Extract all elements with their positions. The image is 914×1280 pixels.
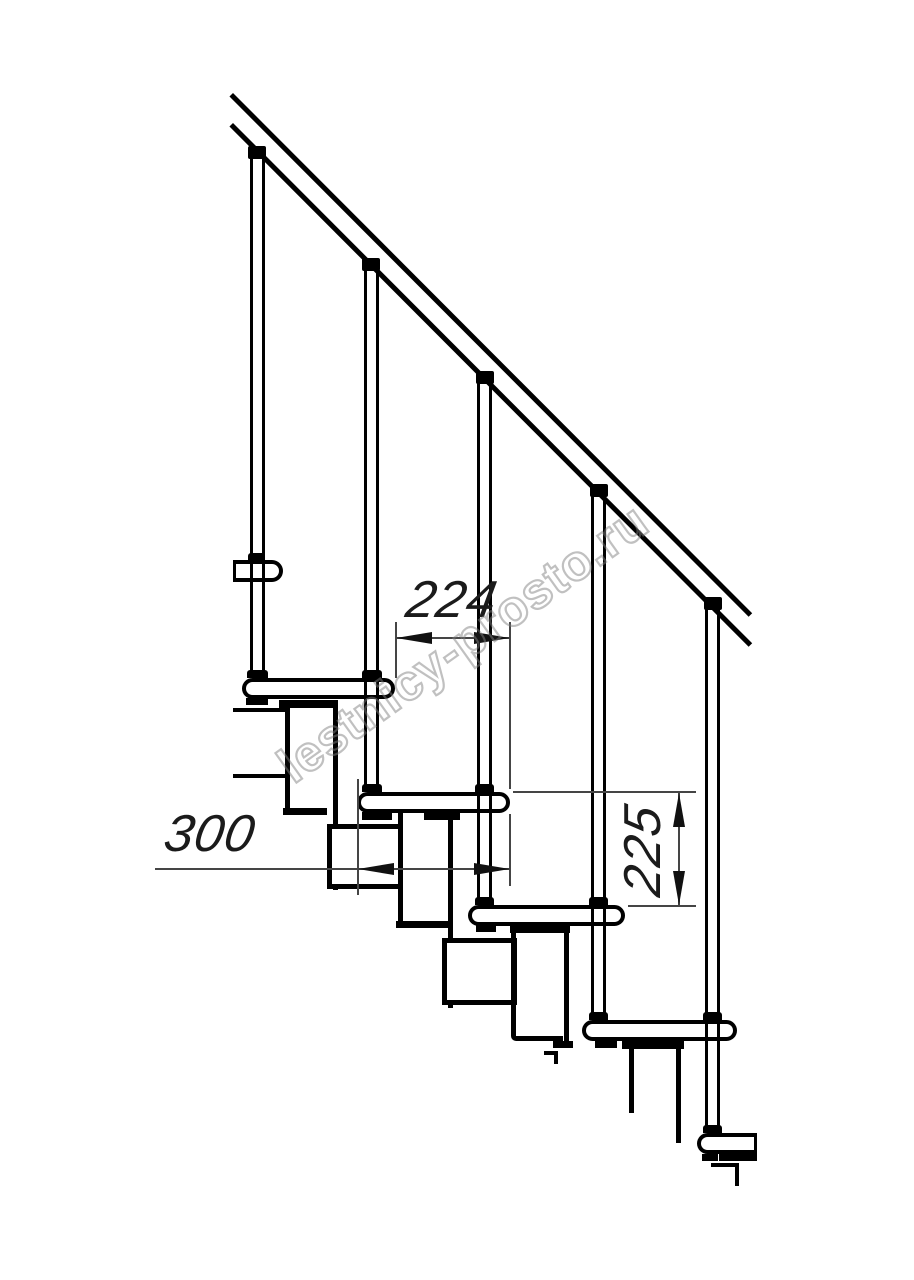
tread-6-partial bbox=[697, 1133, 757, 1154]
module-column-4-right bbox=[564, 932, 569, 1045]
baluster-3-foot-lower bbox=[475, 897, 494, 905]
baluster-4-foot-upper bbox=[589, 897, 608, 905]
baluster-1-foot-upper bbox=[248, 553, 265, 561]
module-column-4-left bbox=[511, 932, 516, 1036]
dim-300-arrow-left bbox=[358, 863, 394, 875]
tread-3-tab-left bbox=[362, 812, 392, 820]
break-hook-vertical bbox=[554, 1051, 558, 1064]
baluster-4-foot-lower bbox=[589, 1012, 608, 1020]
landing-cut-line-upper bbox=[233, 708, 287, 712]
baluster-5-foot-lower bbox=[703, 1125, 722, 1133]
dim-300-arrow-right bbox=[474, 863, 510, 875]
dim-225-ext-bottom bbox=[628, 905, 696, 907]
baluster-5-foot-upper bbox=[703, 1012, 722, 1020]
module-box-under-tread-4 bbox=[442, 938, 517, 1005]
dim-225-arrow-up bbox=[673, 793, 685, 827]
baluster-1-foot-lower bbox=[247, 670, 268, 678]
bottom-break-vertical bbox=[735, 1163, 739, 1186]
module-column-5-cut-left bbox=[629, 1048, 634, 1113]
tread-5-tab-mid bbox=[622, 1041, 684, 1049]
staircase-technical-drawing: 224 300 225 lestnicy-prosto.ru bbox=[0, 0, 914, 1280]
dim-225-arrow-down bbox=[673, 871, 685, 905]
tread-3-tab-mid bbox=[424, 812, 460, 820]
module-column-2-band bbox=[283, 808, 327, 815]
module-column-3-band bbox=[396, 921, 448, 928]
dim-300-line bbox=[155, 868, 510, 870]
tread-4-tab-left bbox=[476, 925, 496, 932]
module-box-under-tread-3 bbox=[327, 824, 403, 889]
module-column-5-cut-right bbox=[676, 1042, 681, 1143]
module-column-4-notch bbox=[553, 1041, 573, 1048]
tread-6-tab-left bbox=[702, 1154, 718, 1161]
dim-300-ext-left bbox=[357, 779, 359, 895]
dim-225-ext-top bbox=[513, 791, 696, 793]
watermark-text: lestnicy-prosto.ru bbox=[241, 473, 684, 814]
dim-225-label: 225 bbox=[617, 798, 669, 902]
dim-224-ext-right-b bbox=[509, 814, 511, 886]
tread-2-tab-left bbox=[246, 698, 268, 705]
tread-5-tab-left bbox=[595, 1040, 617, 1048]
baluster-2-foot-lower bbox=[362, 784, 382, 792]
baluster-3-foot-upper bbox=[475, 784, 494, 792]
baluster-1 bbox=[250, 152, 265, 678]
dim-300-label: 300 bbox=[160, 808, 260, 860]
tread-4-tab-mid bbox=[510, 926, 570, 933]
baluster-5 bbox=[705, 602, 720, 1133]
